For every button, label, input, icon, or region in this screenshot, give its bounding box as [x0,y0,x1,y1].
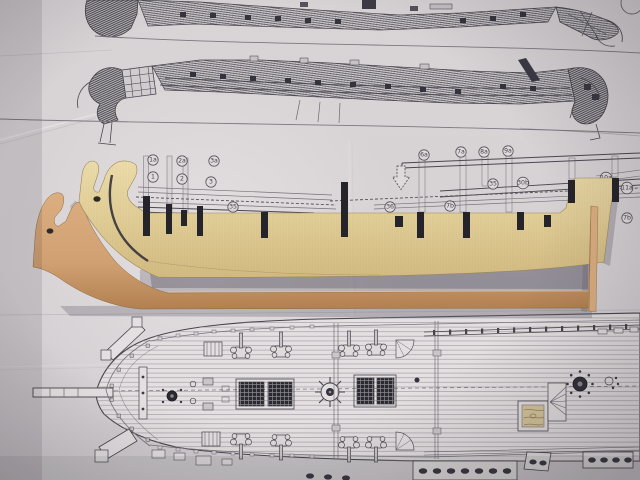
photo-ship-model-plans: 1a 1 2a 2 3a 3 35 6a 7a 8a 9a 35 36 7b 3… [0,0,640,480]
scene-canvas: 1a 1 2a 2 3a 3 35 6a 7a 8a 9a 35 36 7b 3… [0,0,640,480]
left-edge-shade [0,0,42,480]
vignette [0,0,640,480]
bottom-edge-shade [0,456,640,480]
